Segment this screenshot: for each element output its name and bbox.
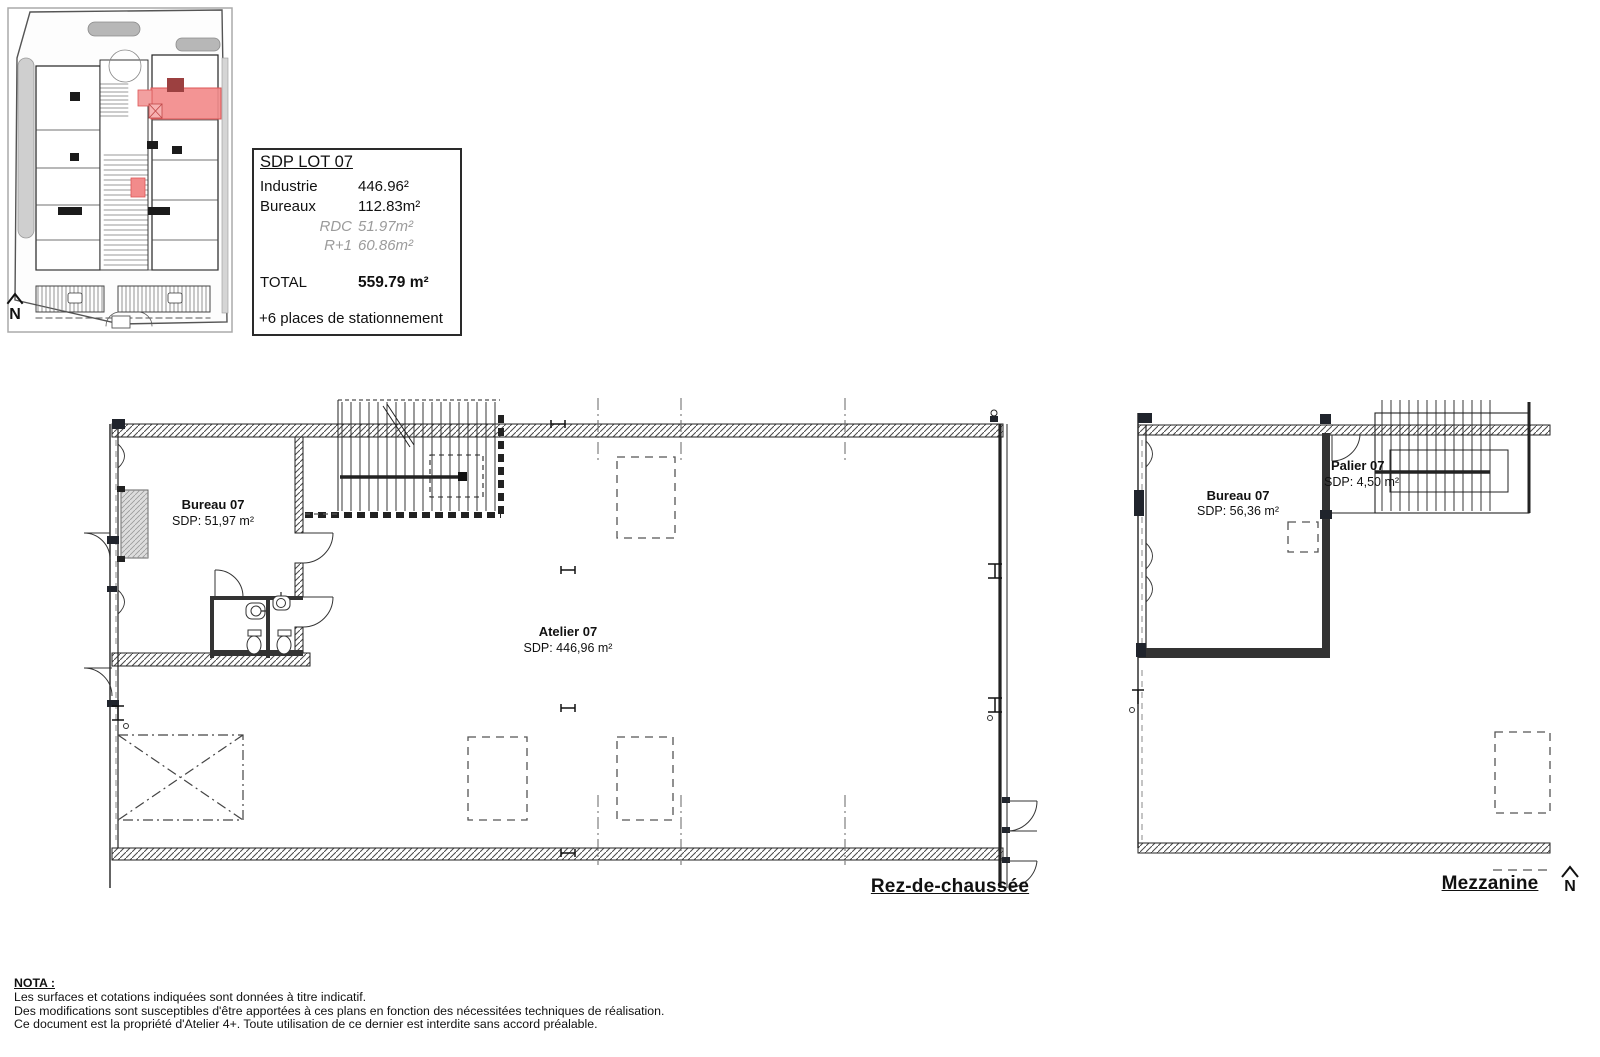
title-block-total-label: TOTAL (260, 274, 307, 291)
mezz-north-label: N (1560, 878, 1580, 896)
rdc-plan-title: Rez-de-chaussée (830, 876, 1070, 898)
site-hedge (88, 22, 140, 36)
title-block-row-value: 60.86m² (358, 237, 413, 254)
rdc-atelier-name: Atelier 07 (498, 624, 638, 639)
title-block-row-value: 446.96² (358, 178, 409, 195)
title-block-row-value: 112.83m² (358, 198, 420, 215)
nota-line: Des modifications sont susceptibles d'êt… (14, 1005, 914, 1018)
site-green-strip (18, 58, 34, 238)
nota-heading: NOTA : (14, 977, 914, 990)
mezz-wall-anchors (1134, 413, 1332, 657)
mezz-north-arrow-icon (1562, 867, 1578, 877)
title-block-row-value: 51.97m² (358, 218, 413, 235)
title-block-row-label: Industrie (260, 178, 318, 195)
mezz-stairs (1330, 400, 1529, 513)
title-block-title: SDP LOT 07 (260, 153, 353, 172)
site-key-plan (8, 8, 232, 332)
plan-linework (0, 0, 1600, 1057)
title-block: SDP LOT 07 Industrie 446.96² Bureaux 112… (252, 148, 462, 336)
rdc-wc-block (210, 570, 303, 658)
rdc-atelier-area: SDP: 446,96 m² (498, 641, 638, 655)
mezz-bureau-area: SDP: 56,36 m² (1178, 504, 1298, 518)
mezz-plan-title: Mezzanine (1420, 873, 1560, 895)
site-building (36, 55, 218, 270)
nota-line: Les surfaces et cotations indiquées sont… (14, 991, 914, 1004)
title-block-row-label: RDC (254, 218, 352, 235)
rdc-bureau-name: Bureau 07 (153, 497, 273, 512)
site-hedge (176, 38, 220, 51)
nota-line: Ce document est la propriété d'Atelier 4… (14, 1018, 914, 1031)
mezz-palier-name: Palier 07 (1331, 458, 1411, 473)
title-block-parking-note: +6 places de stationnement (259, 310, 443, 327)
floor-plan-sheet: { "colors": { "highlight_fill": "#F28B8B… (0, 0, 1600, 1057)
rdc-bureau-area: SDP: 51,97 m² (153, 514, 273, 528)
site-north-label: N (5, 306, 25, 324)
title-block-row-label: Bureaux (260, 198, 316, 215)
title-block-total-value: 559.79 m² (358, 274, 429, 292)
title-block-row-label: R+1 (254, 237, 352, 254)
rdc-duct (117, 486, 148, 562)
rdc-stairs (305, 400, 501, 515)
nota-block: NOTA : Les surfaces et cotations indiqué… (14, 977, 914, 1032)
mezz-palier-area: SDP: 4,50 m² (1324, 475, 1414, 489)
mezz-bureau-name: Bureau 07 (1178, 488, 1298, 503)
rdc-crossed-zone (118, 735, 243, 820)
